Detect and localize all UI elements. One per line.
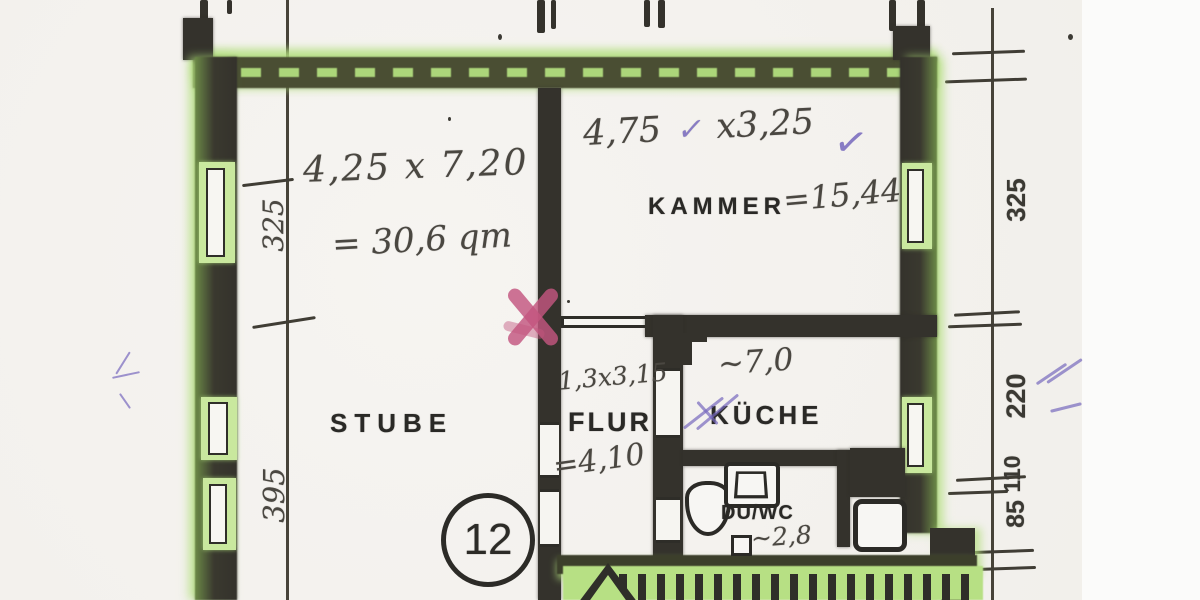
- wall-dashed-line: [203, 68, 927, 77]
- kueche-area-note: ~7,0: [717, 341, 795, 382]
- door-opening: [540, 489, 559, 547]
- kammer-size-note: 4,75 ✓ x3,25: [582, 102, 815, 154]
- room-label-kammer: KAMMER: [648, 193, 786, 221]
- wall-top: [193, 57, 937, 88]
- door-opening: [656, 497, 680, 543]
- scan-speck: [498, 34, 502, 40]
- window: [201, 397, 237, 460]
- duwc-area-note: ~2,8: [750, 520, 813, 553]
- tick: [974, 566, 1036, 571]
- unit-number-badge: 12: [441, 493, 535, 587]
- check-mark: ✓: [671, 112, 706, 149]
- scan-speck: [567, 300, 570, 303]
- flur-size-note: 1,3x3,15: [557, 357, 669, 395]
- kammer-size-b: x3,25: [715, 102, 815, 147]
- wall-shower-block: [850, 448, 905, 497]
- wall-corner-top-left: [183, 18, 213, 60]
- unit-number: 12: [464, 515, 513, 565]
- window: [199, 162, 235, 263]
- wall-corner-top-right: [893, 26, 930, 60]
- floor-plan-scan: 4,25 x 7,20 = 30,6 qm STUBE 4,75 ✓ x3,25…: [0, 0, 1200, 600]
- kammer-size-a: 4,75: [582, 110, 662, 154]
- tick: [252, 316, 316, 329]
- scan-edge: [1082, 0, 1200, 600]
- pen-mark-left-edge: [119, 393, 131, 409]
- tick: [945, 78, 1027, 84]
- tick: [551, 0, 556, 29]
- room-label-flur: FLUR: [568, 407, 652, 438]
- window: [902, 397, 932, 473]
- room-label-stube: STUBE: [330, 408, 453, 439]
- stube-area-note: = 30,6 qm: [331, 215, 513, 264]
- dim-label-right-220: 220: [1001, 360, 1031, 432]
- pen-mark-left-edge: [115, 351, 130, 374]
- door-jamb-icon: [683, 333, 707, 342]
- tick: [537, 0, 545, 33]
- flur-area-note: =4,10: [551, 437, 647, 484]
- stair-hatching: [600, 574, 980, 600]
- dim-label-left-325: 325: [257, 189, 287, 261]
- dim-label-right-85: 85: [1002, 482, 1030, 546]
- dim-label-left-395: 395: [257, 459, 287, 531]
- window: [203, 478, 236, 550]
- tick: [227, 0, 232, 14]
- dimension-line-right: [991, 8, 994, 600]
- dim-label-right-325: 325: [1001, 164, 1031, 236]
- tick: [644, 0, 650, 27]
- tick: [968, 549, 1034, 554]
- shower-tray-icon: [853, 499, 907, 552]
- kammer-area-note: =15,44: [782, 171, 903, 219]
- pen-mark-right-edge: [1050, 402, 1082, 413]
- doorway-threshold: [561, 316, 651, 328]
- stube-size-note: 4,25 x 7,20: [302, 142, 529, 191]
- check-mark: ✓: [830, 117, 871, 168]
- tick: [948, 323, 1022, 329]
- window: [902, 163, 932, 249]
- scan-speck: [1068, 34, 1073, 40]
- floor-drain-icon: [731, 535, 752, 556]
- wall-duwc-right: [837, 450, 850, 547]
- tick: [952, 50, 1025, 56]
- scan-speck: [448, 117, 451, 121]
- tick: [954, 310, 1020, 316]
- tick: [658, 0, 665, 28]
